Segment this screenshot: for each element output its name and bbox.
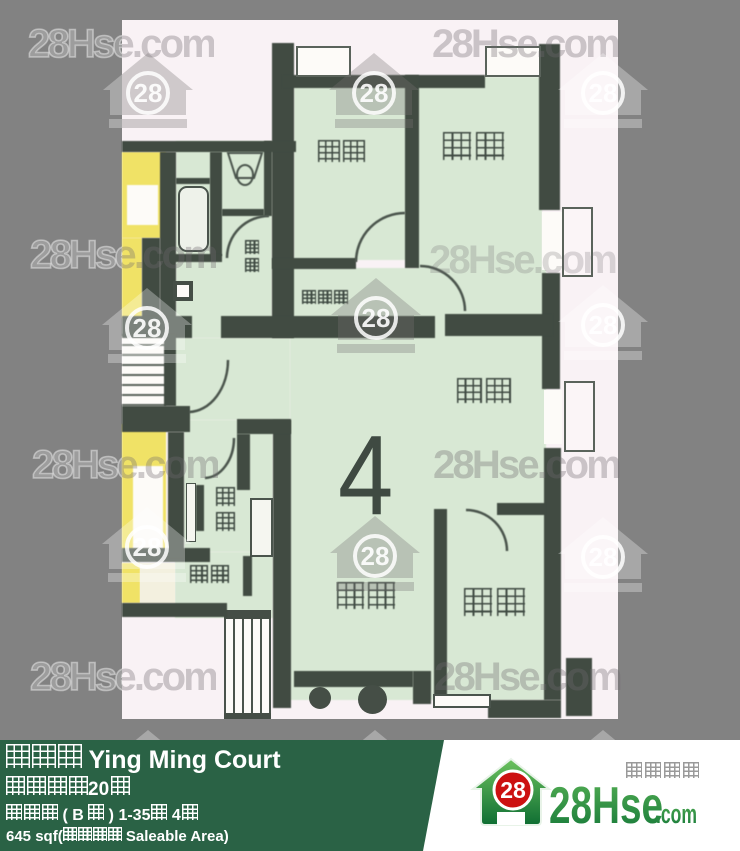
svg-text:28Hse: 28Hse <box>549 777 663 835</box>
svg-text:.com: .com <box>656 799 697 829</box>
svg-text:28: 28 <box>500 777 526 803</box>
